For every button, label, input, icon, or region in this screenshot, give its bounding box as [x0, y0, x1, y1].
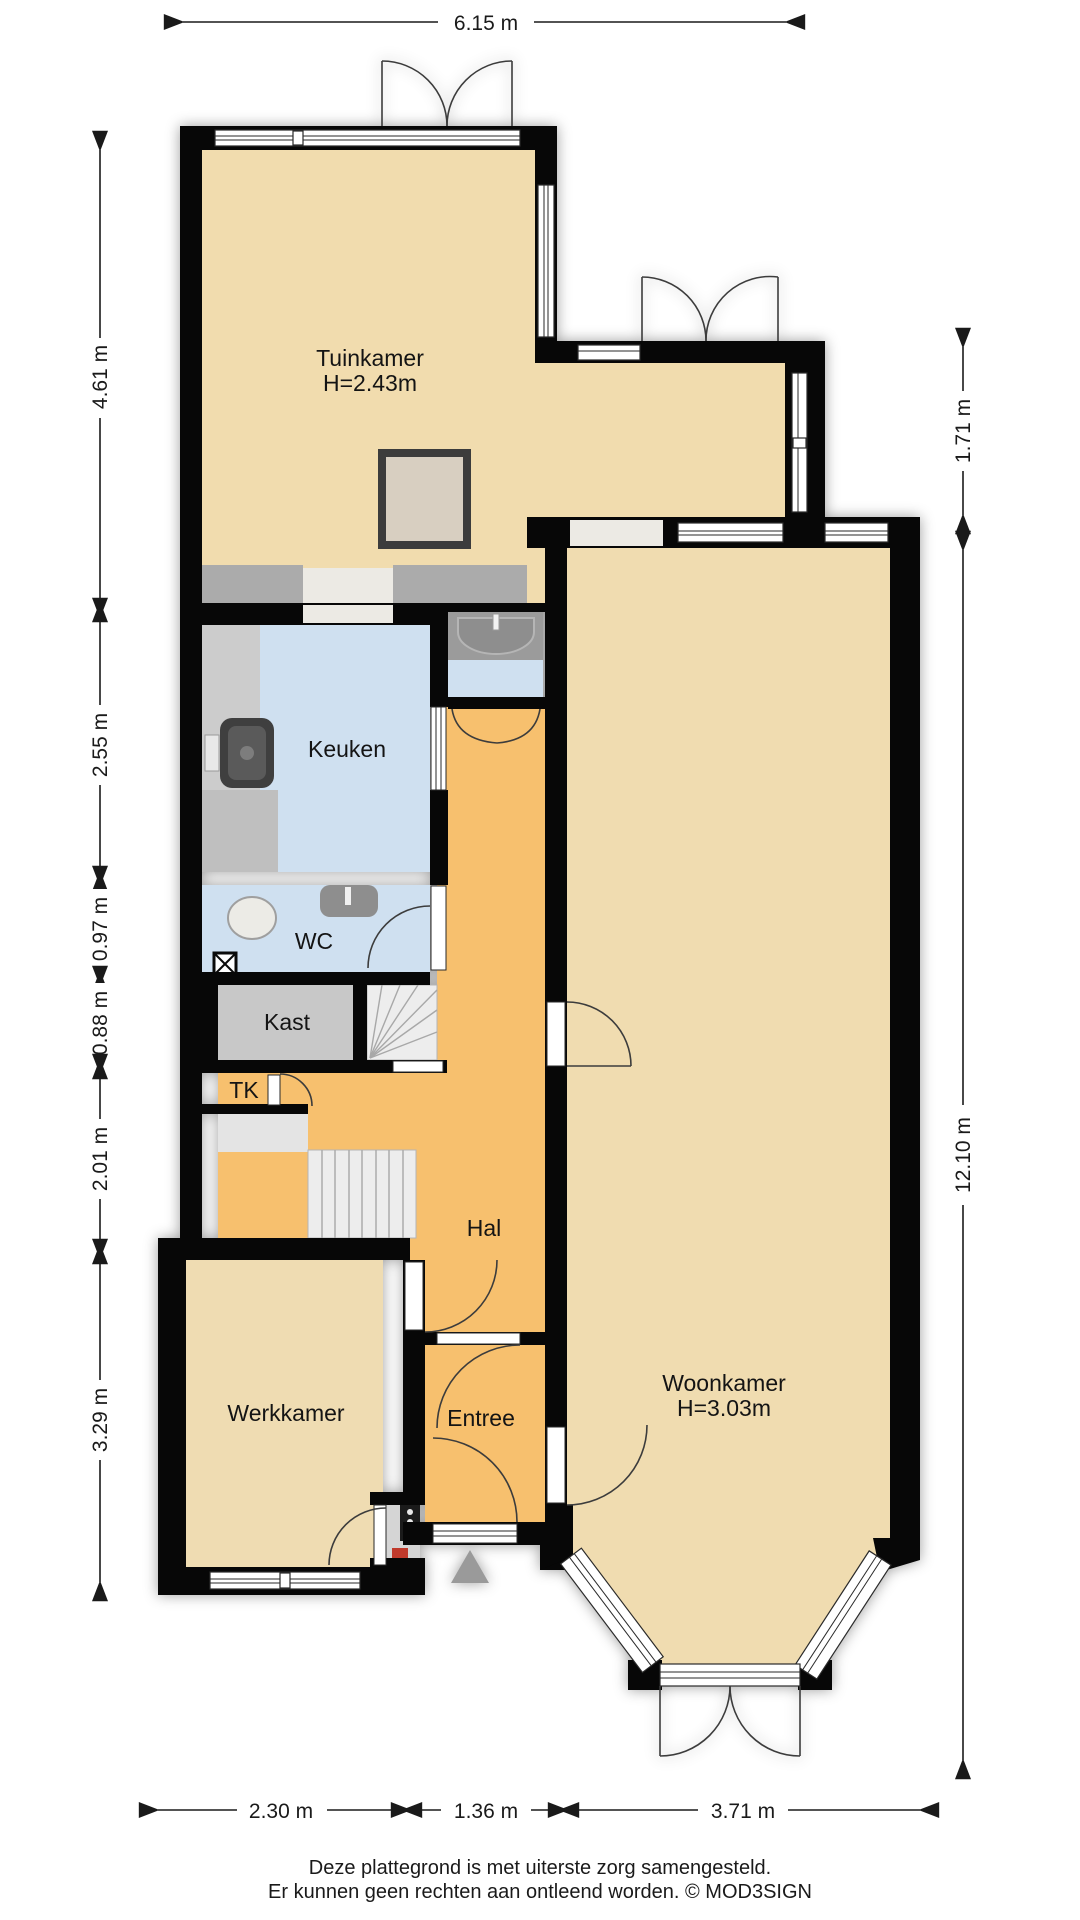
dim-bottom: 2.30 m 1.36 m 3.71 m: [158, 1796, 920, 1824]
tuinkamer-counter-left: [202, 565, 303, 603]
wall-segment: [180, 1104, 308, 1114]
stair-landing-mat: [218, 1108, 308, 1152]
wc-basin-faucet: [345, 887, 351, 905]
front-door: [433, 1524, 517, 1543]
window-werkkamer: [210, 1572, 360, 1589]
window-bay-doors: [660, 1664, 800, 1686]
dim-left-5: 2.01 m: [89, 1127, 112, 1191]
wall-segment: [430, 790, 448, 885]
tuinkamer-counter-right: [393, 565, 527, 603]
door-wc-panel: [431, 886, 446, 970]
dim-left-4: 0.88 m: [89, 991, 112, 1055]
wall-segment: [180, 985, 218, 1060]
label-hal: Hal: [467, 1215, 502, 1241]
wall-segment: [180, 972, 430, 985]
entree-floor: [425, 1345, 545, 1522]
wall-segment: [158, 1238, 186, 1595]
wall-segment: [430, 603, 448, 707]
woonkamer-floor: [557, 548, 890, 1672]
nook-faucet: [493, 614, 499, 630]
label-kast: Kast: [264, 1009, 311, 1035]
dim-bottom-2: 1.36 m: [454, 1800, 518, 1823]
winder-stairs: [367, 985, 437, 1060]
door-werkkamer-panel: [405, 1262, 423, 1330]
shaft-symbol: [214, 953, 236, 975]
wall-segment: [890, 517, 920, 1557]
floor-plan: Tuinkamer H=2.43m Keuken WC Kast TK Hal …: [0, 0, 1080, 1920]
entrance-triangle: [451, 1550, 489, 1583]
window-tuinkamer-top: [215, 130, 520, 146]
dim-left-6: 3.29 m: [89, 1388, 112, 1452]
dim-bottom-1: 2.30 m: [249, 1800, 313, 1823]
dim-left-2: 2.55 m: [89, 713, 112, 777]
window-woonkamer-top-left: [678, 523, 783, 542]
window-tuinkamer-step: [578, 345, 640, 360]
footer-line-2: Er kunnen geen rechten aan ontleend word…: [268, 1881, 812, 1903]
dim-left-1: 4.61 m: [89, 345, 112, 409]
dim-right: 1.71 m 12.10 m: [949, 347, 977, 1760]
label-werkkamer: Werkkamer: [227, 1400, 344, 1426]
window-woonkamer-top-right: [825, 523, 888, 542]
label-tuinkamer: Tuinkamer: [316, 345, 424, 371]
wall-segment: [158, 1238, 410, 1260]
dim-right-1: 1.71 m: [952, 399, 975, 463]
door-entree-woonkamer-opening: [547, 1427, 565, 1503]
tuinkamer-table: [382, 453, 467, 545]
opening-tuin-keuken: [303, 605, 393, 623]
wall-segment: [353, 985, 367, 1060]
wc-toilet: [228, 897, 276, 939]
window-tuinkamer-east: [792, 373, 807, 512]
dim-left-3: 0.97 m: [89, 897, 112, 961]
door-keuken-glass: [431, 707, 446, 790]
wall-segment: [448, 697, 545, 709]
label-tuinkamer-height: H=2.43m: [323, 370, 417, 396]
label-wc: WC: [295, 928, 333, 954]
floors: [186, 150, 890, 1672]
dim-bottom-3: 3.71 m: [711, 1800, 775, 1823]
floorplan-page: Tuinkamer H=2.43m Keuken WC Kast TK Hal …: [0, 0, 1080, 1920]
footer-line-1: Deze plattegrond is met uiterste zorg sa…: [309, 1857, 771, 1879]
door-tk-panel: [268, 1075, 280, 1105]
window-tuinkamer-right: [538, 185, 554, 337]
plan-body: [158, 61, 920, 1756]
kitchen-counter-low: [202, 790, 278, 872]
footer: Deze plattegrond is met uiterste zorg sa…: [268, 1857, 812, 1903]
wall-segment: [448, 603, 545, 612]
label-woonkamer-height: H=3.03m: [677, 1395, 771, 1421]
french-doors-bay: [660, 1686, 800, 1756]
opening-tuin-woonkamer: [570, 520, 663, 546]
door-hal-entree-opening: [437, 1333, 520, 1344]
label-entree: Entree: [447, 1405, 515, 1431]
kitchen-sink-drain: [240, 746, 254, 760]
label-woonkamer: Woonkamer: [662, 1370, 786, 1396]
dim-left: 4.61 m 2.55 m 0.97 m 0.88 m 2.01 m 3.29 …: [86, 150, 114, 1582]
wall-segment: [180, 126, 202, 1260]
french-doors-tuinkamer-right: [642, 276, 778, 341]
label-keuken: Keuken: [308, 736, 386, 762]
door-kast-panel: [393, 1061, 443, 1072]
dim-top-label: 6.15 m: [454, 12, 518, 35]
label-tk: TK: [229, 1077, 259, 1103]
door-meterkast-panel: [374, 1505, 386, 1565]
french-doors-tuinkamer-top: [382, 61, 512, 126]
wall-segment: [370, 1492, 425, 1505]
meter-dot-1: [407, 1509, 413, 1515]
dim-right-2: 12.10 m: [952, 1117, 975, 1193]
kitchen-faucet: [205, 735, 219, 771]
dim-top: 6.15 m: [183, 8, 786, 36]
door-hal-woonkamer-opening: [547, 1002, 565, 1066]
